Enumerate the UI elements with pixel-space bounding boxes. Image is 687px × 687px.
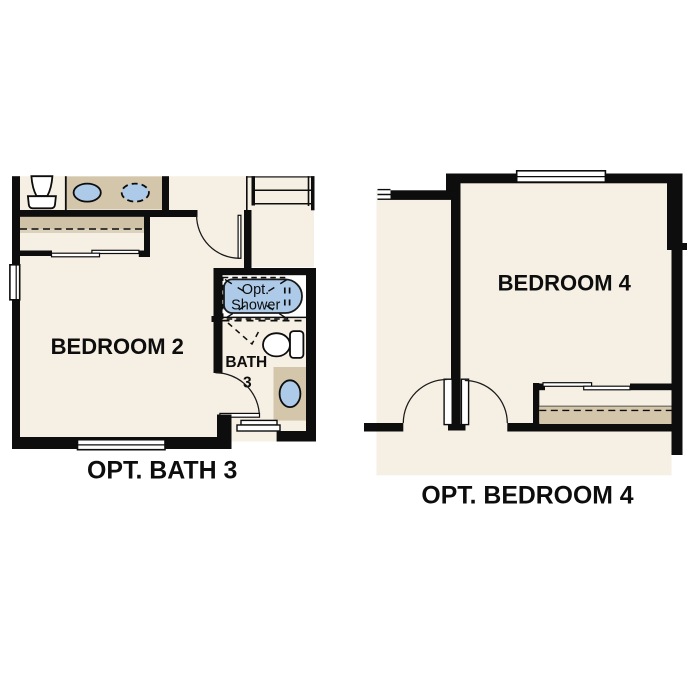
svg-text:BATH: BATH: [225, 354, 267, 371]
svg-text:OPT. BATH 3: OPT. BATH 3: [87, 456, 237, 484]
svg-text:BEDROOM 2: BEDROOM 2: [51, 334, 184, 359]
svg-text:BEDROOM 4: BEDROOM 4: [498, 270, 632, 295]
svg-text:OPT. BEDROOM 4: OPT. BEDROOM 4: [421, 483, 633, 510]
svg-text:Opt.: Opt.: [242, 282, 269, 298]
svg-text:Shower: Shower: [231, 298, 280, 314]
